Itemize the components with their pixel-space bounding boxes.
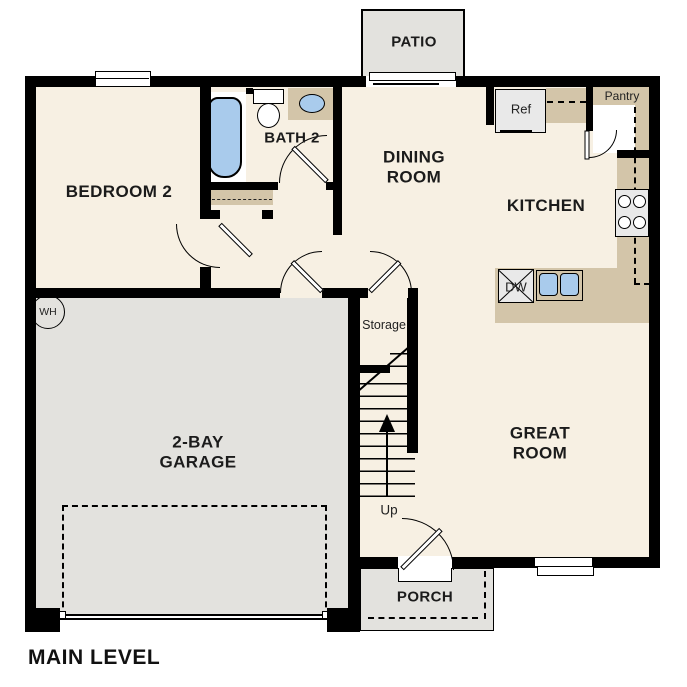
pantry-door-leaf — [585, 131, 590, 160]
pantry-label: Pantry — [605, 89, 640, 103]
floor-plan: PATIO BEDROOM 2 BATH 2 DINING ROOM KITCH… — [0, 0, 687, 687]
ref-label: Ref — [511, 102, 531, 117]
porch-edge-dash-h — [368, 617, 478, 619]
water-heater-label: WH — [39, 306, 57, 318]
kitchen-sink-icon — [536, 270, 583, 301]
window-pane-line — [96, 78, 149, 79]
burner-icon — [618, 195, 631, 208]
bedroom2-label: BEDROOM 2 — [66, 182, 173, 202]
stair-treads-upper — [390, 342, 407, 373]
closet-rod-dash — [212, 199, 272, 200]
bathtub-icon — [208, 97, 242, 178]
storage-label: Storage — [362, 318, 406, 332]
dishwasher-label: DW — [505, 280, 527, 295]
garage-label-line2: GARAGE — [159, 452, 236, 472]
great-room-label: GREAT ROOM — [510, 423, 570, 462]
great-room-label-line1: GREAT — [510, 423, 570, 443]
wall-storage-bottom — [358, 365, 390, 373]
cabinet-dash-ref — [547, 101, 586, 103]
wall-pantry-south — [617, 150, 649, 158]
toilet-tank-icon — [253, 89, 284, 104]
bath2-label: BATH 2 — [264, 129, 319, 146]
kitchen-label: KITCHEN — [507, 196, 585, 216]
main-level-title: MAIN LEVEL — [28, 646, 160, 670]
bath-sink-icon — [299, 94, 325, 113]
greatroom-window-icon-b — [537, 566, 594, 576]
up-label: Up — [380, 503, 397, 518]
wall-garage-top — [25, 288, 418, 298]
cabinet-dash-h — [634, 283, 650, 285]
patio-slider-rail — [373, 83, 439, 85]
stair-arrow-head — [379, 414, 395, 432]
wall-dining-west — [333, 80, 342, 235]
burner-icon — [633, 216, 646, 229]
garage-door — [60, 614, 327, 620]
garage-bay-dashed-outline — [62, 505, 327, 617]
sink-bowl-icon — [539, 273, 558, 296]
sink-bowl-icon — [560, 273, 579, 296]
great-room-label-line2: ROOM — [510, 443, 570, 463]
patio-label: PATIO — [391, 33, 437, 50]
wall-garage-stub-left — [25, 608, 60, 632]
wall-garage-right — [348, 288, 360, 632]
stove-icon — [615, 189, 649, 237]
stair-arrow-shaft — [386, 430, 388, 496]
wall-kitchen-stub — [486, 80, 494, 125]
wall-tub-partition — [246, 88, 253, 94]
dining-room-label: DINING ROOM — [383, 147, 445, 186]
burner-icon — [618, 216, 631, 229]
patio-slider-icon — [369, 72, 456, 81]
wall-pantry-stub — [586, 87, 593, 131]
garage-label: 2-BAY GARAGE — [159, 432, 236, 471]
garage-label-line1: 2-BAY — [159, 432, 236, 452]
front-door-threshold — [398, 568, 452, 582]
kitchen-counter-ref — [546, 88, 587, 123]
pantry-counter-side — [635, 105, 649, 153]
wall-stairs-right — [407, 288, 418, 453]
refrigerator-handle — [500, 130, 532, 132]
dining-room-label-line1: DINING — [383, 147, 445, 167]
porch-label: PORCH — [397, 588, 453, 605]
wall-left — [25, 76, 36, 632]
bedroom-window-icon — [95, 71, 151, 87]
wall-right — [649, 76, 660, 568]
dining-room-label-line2: ROOM — [383, 167, 445, 187]
toilet-bowl-icon — [257, 103, 280, 128]
burner-icon — [633, 195, 646, 208]
closet-opening — [220, 210, 262, 219]
porch-edge-dash-v — [484, 571, 486, 619]
wall-front — [348, 557, 660, 568]
